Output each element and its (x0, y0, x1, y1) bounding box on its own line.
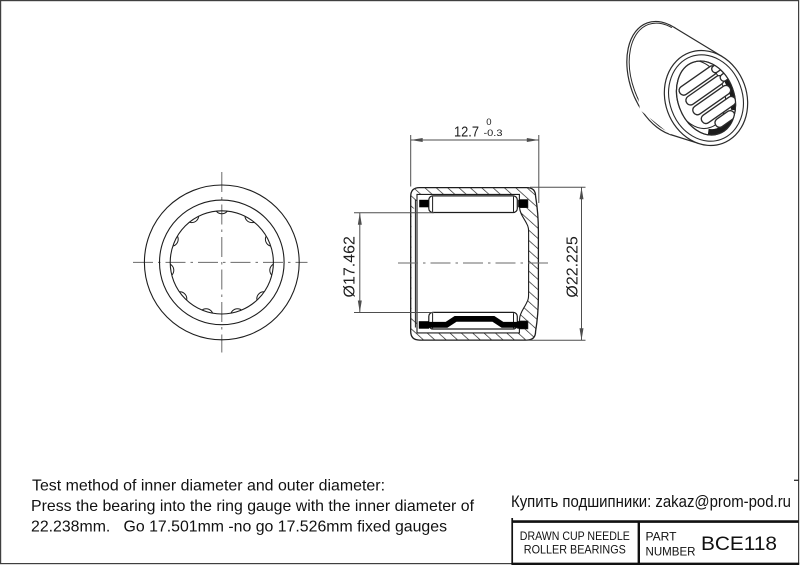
svg-text:Купить подшипники: zakaz@prom-: Купить подшипники: zakaz@prom-pod.ru (511, 492, 791, 511)
svg-text:ROLLER BEARINGS: ROLLER BEARINGS (524, 542, 626, 556)
svg-text:0: 0 (486, 117, 491, 128)
svg-text:22.238mm. Go 17.501mm -no go: 22.238mm. Go 17.501mm -no go 17.526mm fi… (31, 519, 447, 536)
svg-text:Ø22.225: Ø22.225 (565, 236, 582, 297)
svg-text:Press the bearing into the rin: Press the bearing into the ring gauge wi… (31, 498, 475, 515)
svg-text:PART: PART (646, 529, 677, 543)
svg-text:-0.3: -0.3 (484, 128, 503, 139)
svg-text:BCE118: BCE118 (701, 534, 777, 555)
svg-text:12.7: 12.7 (454, 124, 479, 141)
svg-text:Test method of inner diameter: Test method of inner diameter and outer … (32, 478, 385, 495)
svg-text:NUMBER: NUMBER (646, 545, 696, 559)
svg-text:DRAWN CUP NEEDLE: DRAWN CUP NEEDLE (520, 529, 630, 543)
svg-text:Ø17.462: Ø17.462 (342, 236, 359, 297)
